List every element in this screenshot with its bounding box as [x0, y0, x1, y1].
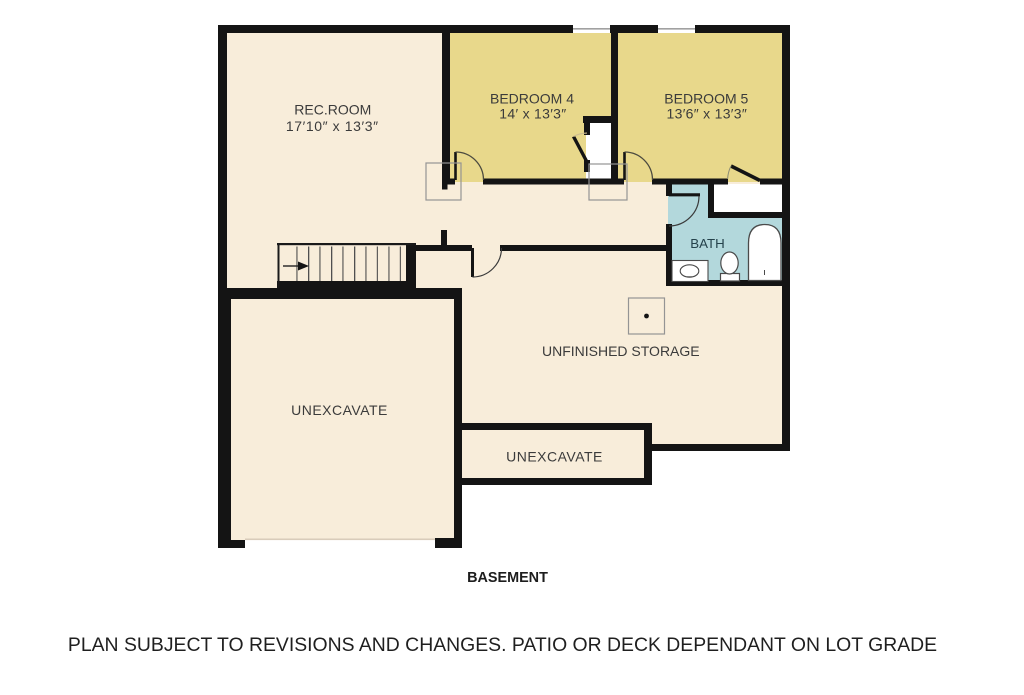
svg-text:13′6″ x 13′3″: 13′6″ x 13′3″: [667, 105, 748, 121]
svg-text:PLAN SUBJECT TO REVISIONS AND: PLAN SUBJECT TO REVISIONS AND CHANGES. P…: [68, 634, 937, 656]
svg-text:14′ x 13′3″: 14′ x 13′3″: [499, 105, 566, 121]
svg-text:REC.ROOM: REC.ROOM: [294, 102, 371, 118]
svg-text:UNEXCAVATE: UNEXCAVATE: [291, 402, 388, 418]
svg-text:UNFINISHED STORAGE: UNFINISHED STORAGE: [542, 343, 700, 359]
svg-text:UNEXCAVATE: UNEXCAVATE: [506, 449, 603, 465]
svg-text:17′10″ x 13′3″: 17′10″ x 13′3″: [286, 118, 379, 134]
svg-text:BEDROOM 4: BEDROOM 4: [490, 90, 574, 106]
svg-text:BEDROOM 5: BEDROOM 5: [664, 90, 748, 106]
svg-text:BATH: BATH: [690, 236, 724, 251]
svg-text:BASEMENT: BASEMENT: [467, 570, 548, 586]
